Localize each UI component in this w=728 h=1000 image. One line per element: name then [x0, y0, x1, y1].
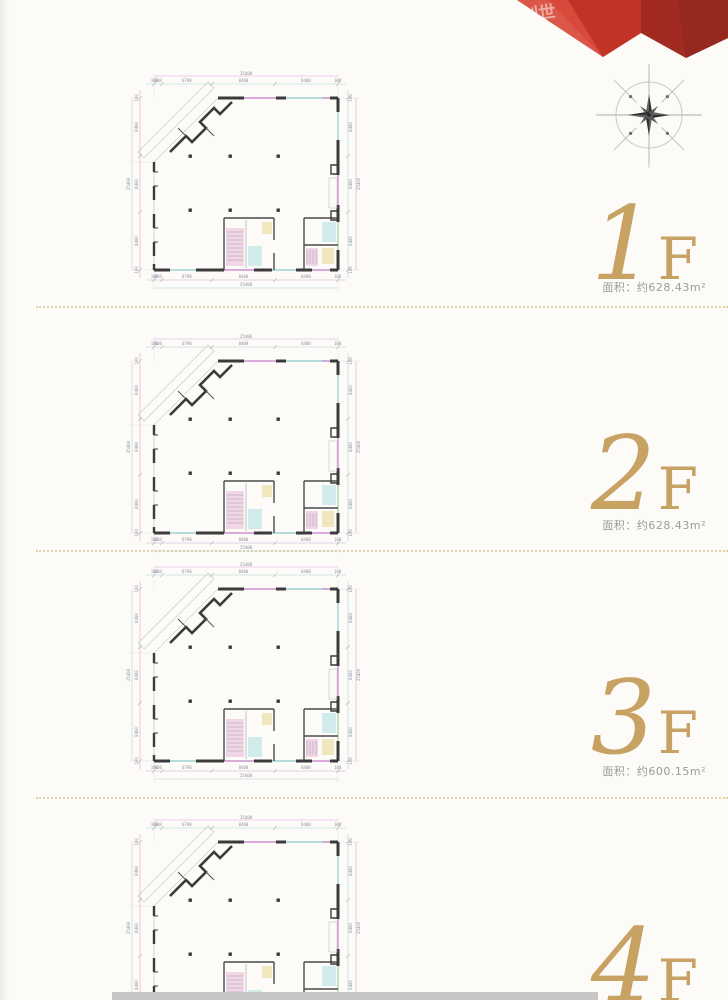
dimension-label: 25400 — [240, 546, 252, 550]
dimension-label: 8400 — [301, 538, 311, 542]
dimension-label: 6790 — [182, 79, 192, 83]
dimension-label: 25400 — [127, 441, 131, 453]
dimension-label: 8400 — [349, 236, 353, 246]
dimension-label: 8400 — [349, 923, 353, 933]
dimension-label: 8400 — [135, 499, 139, 509]
dimension-label: 8400 — [349, 866, 353, 876]
dimension-label: 100 — [349, 757, 353, 764]
floor-plan-drawing — [126, 814, 362, 1000]
floor-number: 2 — [591, 424, 656, 526]
dimension-label: 910 — [155, 538, 162, 542]
dimension-label: 100 — [135, 839, 139, 846]
dimension-label: 25400 — [357, 669, 361, 681]
dimension-label: 8400 — [301, 275, 311, 279]
dimension-label: 100 — [334, 342, 341, 346]
floor-plan-drawing — [126, 333, 362, 559]
dimension-label: 8400 — [135, 727, 139, 737]
dimension-label: 100 — [349, 586, 353, 593]
dimension-label: 8400 — [239, 79, 249, 83]
floor-suffix: F — [658, 460, 698, 518]
floor-plan-drawing — [126, 561, 362, 787]
dimension-label: 100 — [349, 529, 353, 536]
dimension-label: 100 — [135, 757, 139, 764]
dimension-label: 100 — [349, 839, 353, 846]
dimension-label: 910 — [155, 766, 162, 770]
dimension-label: 25400 — [240, 335, 252, 339]
floor-label-2f: 2 F — [591, 424, 698, 526]
dimension-label: 6790 — [182, 275, 192, 279]
dimension-label: 8400 — [239, 342, 249, 346]
floor-plan-4f: 1009106790840084001002540010091067908400… — [126, 814, 362, 1000]
floor-plan-drawing — [126, 70, 362, 296]
dimension-label: 25400 — [357, 441, 361, 453]
floor-label-3f: 3 F — [591, 668, 698, 770]
dimension-label: 25400 — [240, 816, 252, 820]
brochure-page: 创世 zhuy — [0, 0, 728, 1000]
dimension-label: 8400 — [301, 342, 311, 346]
dimension-label: 100 — [334, 823, 341, 827]
floor-suffix: F — [658, 704, 698, 762]
dimension-label: 25400 — [127, 178, 131, 190]
dimension-label: 8400 — [349, 727, 353, 737]
dimension-label: 8400 — [239, 823, 249, 827]
dimension-label: 8400 — [349, 385, 353, 395]
dimension-label: 100 — [349, 266, 353, 273]
dimension-label: 25400 — [127, 669, 131, 681]
dimension-label: 8400 — [135, 980, 139, 990]
dimension-label: 100 — [334, 766, 341, 770]
dimension-label: 25400 — [127, 922, 131, 934]
dimension-label: 8400 — [239, 570, 249, 574]
dimension-label: 8400 — [135, 442, 139, 452]
dimension-label: 8400 — [239, 766, 249, 770]
dimension-label: 6790 — [182, 342, 192, 346]
dimension-label: 100 — [334, 275, 341, 279]
dimension-label: 8400 — [301, 766, 311, 770]
dimension-label: 8400 — [301, 79, 311, 83]
section-separator — [36, 797, 728, 799]
dimension-label: 25400 — [240, 72, 252, 76]
dimension-label: 25400 — [240, 283, 252, 287]
floor-plan-2f: 1009106790840084001002540010091067908400… — [126, 333, 362, 559]
floor-number: 4 — [591, 916, 656, 1000]
dimension-label: 8400 — [349, 980, 353, 990]
dimension-label: 6790 — [182, 570, 192, 574]
dimension-label: 8400 — [135, 923, 139, 933]
dimension-label: 100 — [135, 529, 139, 536]
dimension-label: 8400 — [135, 866, 139, 876]
dimension-label: 8400 — [349, 613, 353, 623]
floor-suffix: F — [658, 952, 698, 1000]
dimension-label: 8400 — [135, 670, 139, 680]
dimension-label: 25400 — [240, 774, 252, 778]
section-separator — [36, 550, 728, 552]
dimension-label: 8400 — [301, 823, 311, 827]
dimension-label: 910 — [155, 79, 162, 83]
floor-area-1f: 面积：约628.43m² — [602, 279, 706, 295]
dimension-label: 8400 — [135, 179, 139, 189]
dimension-label: 8400 — [135, 122, 139, 132]
dimension-label: 8400 — [239, 275, 249, 279]
dimension-label: 8400 — [135, 385, 139, 395]
dimension-label: 8400 — [349, 670, 353, 680]
dimension-label: 8400 — [349, 499, 353, 509]
floor-number: 3 — [591, 668, 656, 770]
dimension-label: 25400 — [240, 563, 252, 567]
section-separator — [36, 306, 728, 308]
compass-rose-icon — [596, 62, 702, 168]
dimension-label: 100 — [135, 586, 139, 593]
dimension-label: 910 — [155, 275, 162, 279]
dimension-label: 100 — [334, 570, 341, 574]
dimension-label: 910 — [155, 823, 162, 827]
dimension-label: 8400 — [349, 442, 353, 452]
dimension-label: 25400 — [357, 922, 361, 934]
dimension-label: 100 — [349, 95, 353, 102]
dimension-label: 8400 — [349, 179, 353, 189]
dimension-label: 8400 — [349, 122, 353, 132]
dimension-label: 6790 — [182, 766, 192, 770]
scan-edge-shading — [0, 0, 10, 1000]
dimension-label: 910 — [155, 342, 162, 346]
floor-plan-3f: 1009106790840084001002540010091067908400… — [126, 561, 362, 787]
floor-area-3f: 面积：约600.15m² — [602, 763, 706, 779]
floor-label-4f: 4 F — [591, 916, 698, 1000]
dimension-label: 25400 — [357, 178, 361, 190]
dimension-label: 8400 — [135, 236, 139, 246]
dimension-label: 100 — [334, 538, 341, 542]
floor-plan-1f: 1009106790840084001002540010091067908400… — [126, 70, 362, 296]
dimension-label: 100 — [135, 266, 139, 273]
dimension-label: 100 — [135, 95, 139, 102]
floor-area-2f: 面积：约628.43m² — [602, 517, 706, 533]
dimension-label: 100 — [349, 358, 353, 365]
dimension-label: 8400 — [239, 538, 249, 542]
dimension-label: 6790 — [182, 823, 192, 827]
dimension-label: 8400 — [301, 570, 311, 574]
dimension-label: 8400 — [135, 613, 139, 623]
dimension-label: 6790 — [182, 538, 192, 542]
scan-bottom-band — [112, 992, 598, 1000]
dimension-label: 100 — [135, 358, 139, 365]
dimension-label: 910 — [155, 570, 162, 574]
dimension-label: 100 — [334, 79, 341, 83]
